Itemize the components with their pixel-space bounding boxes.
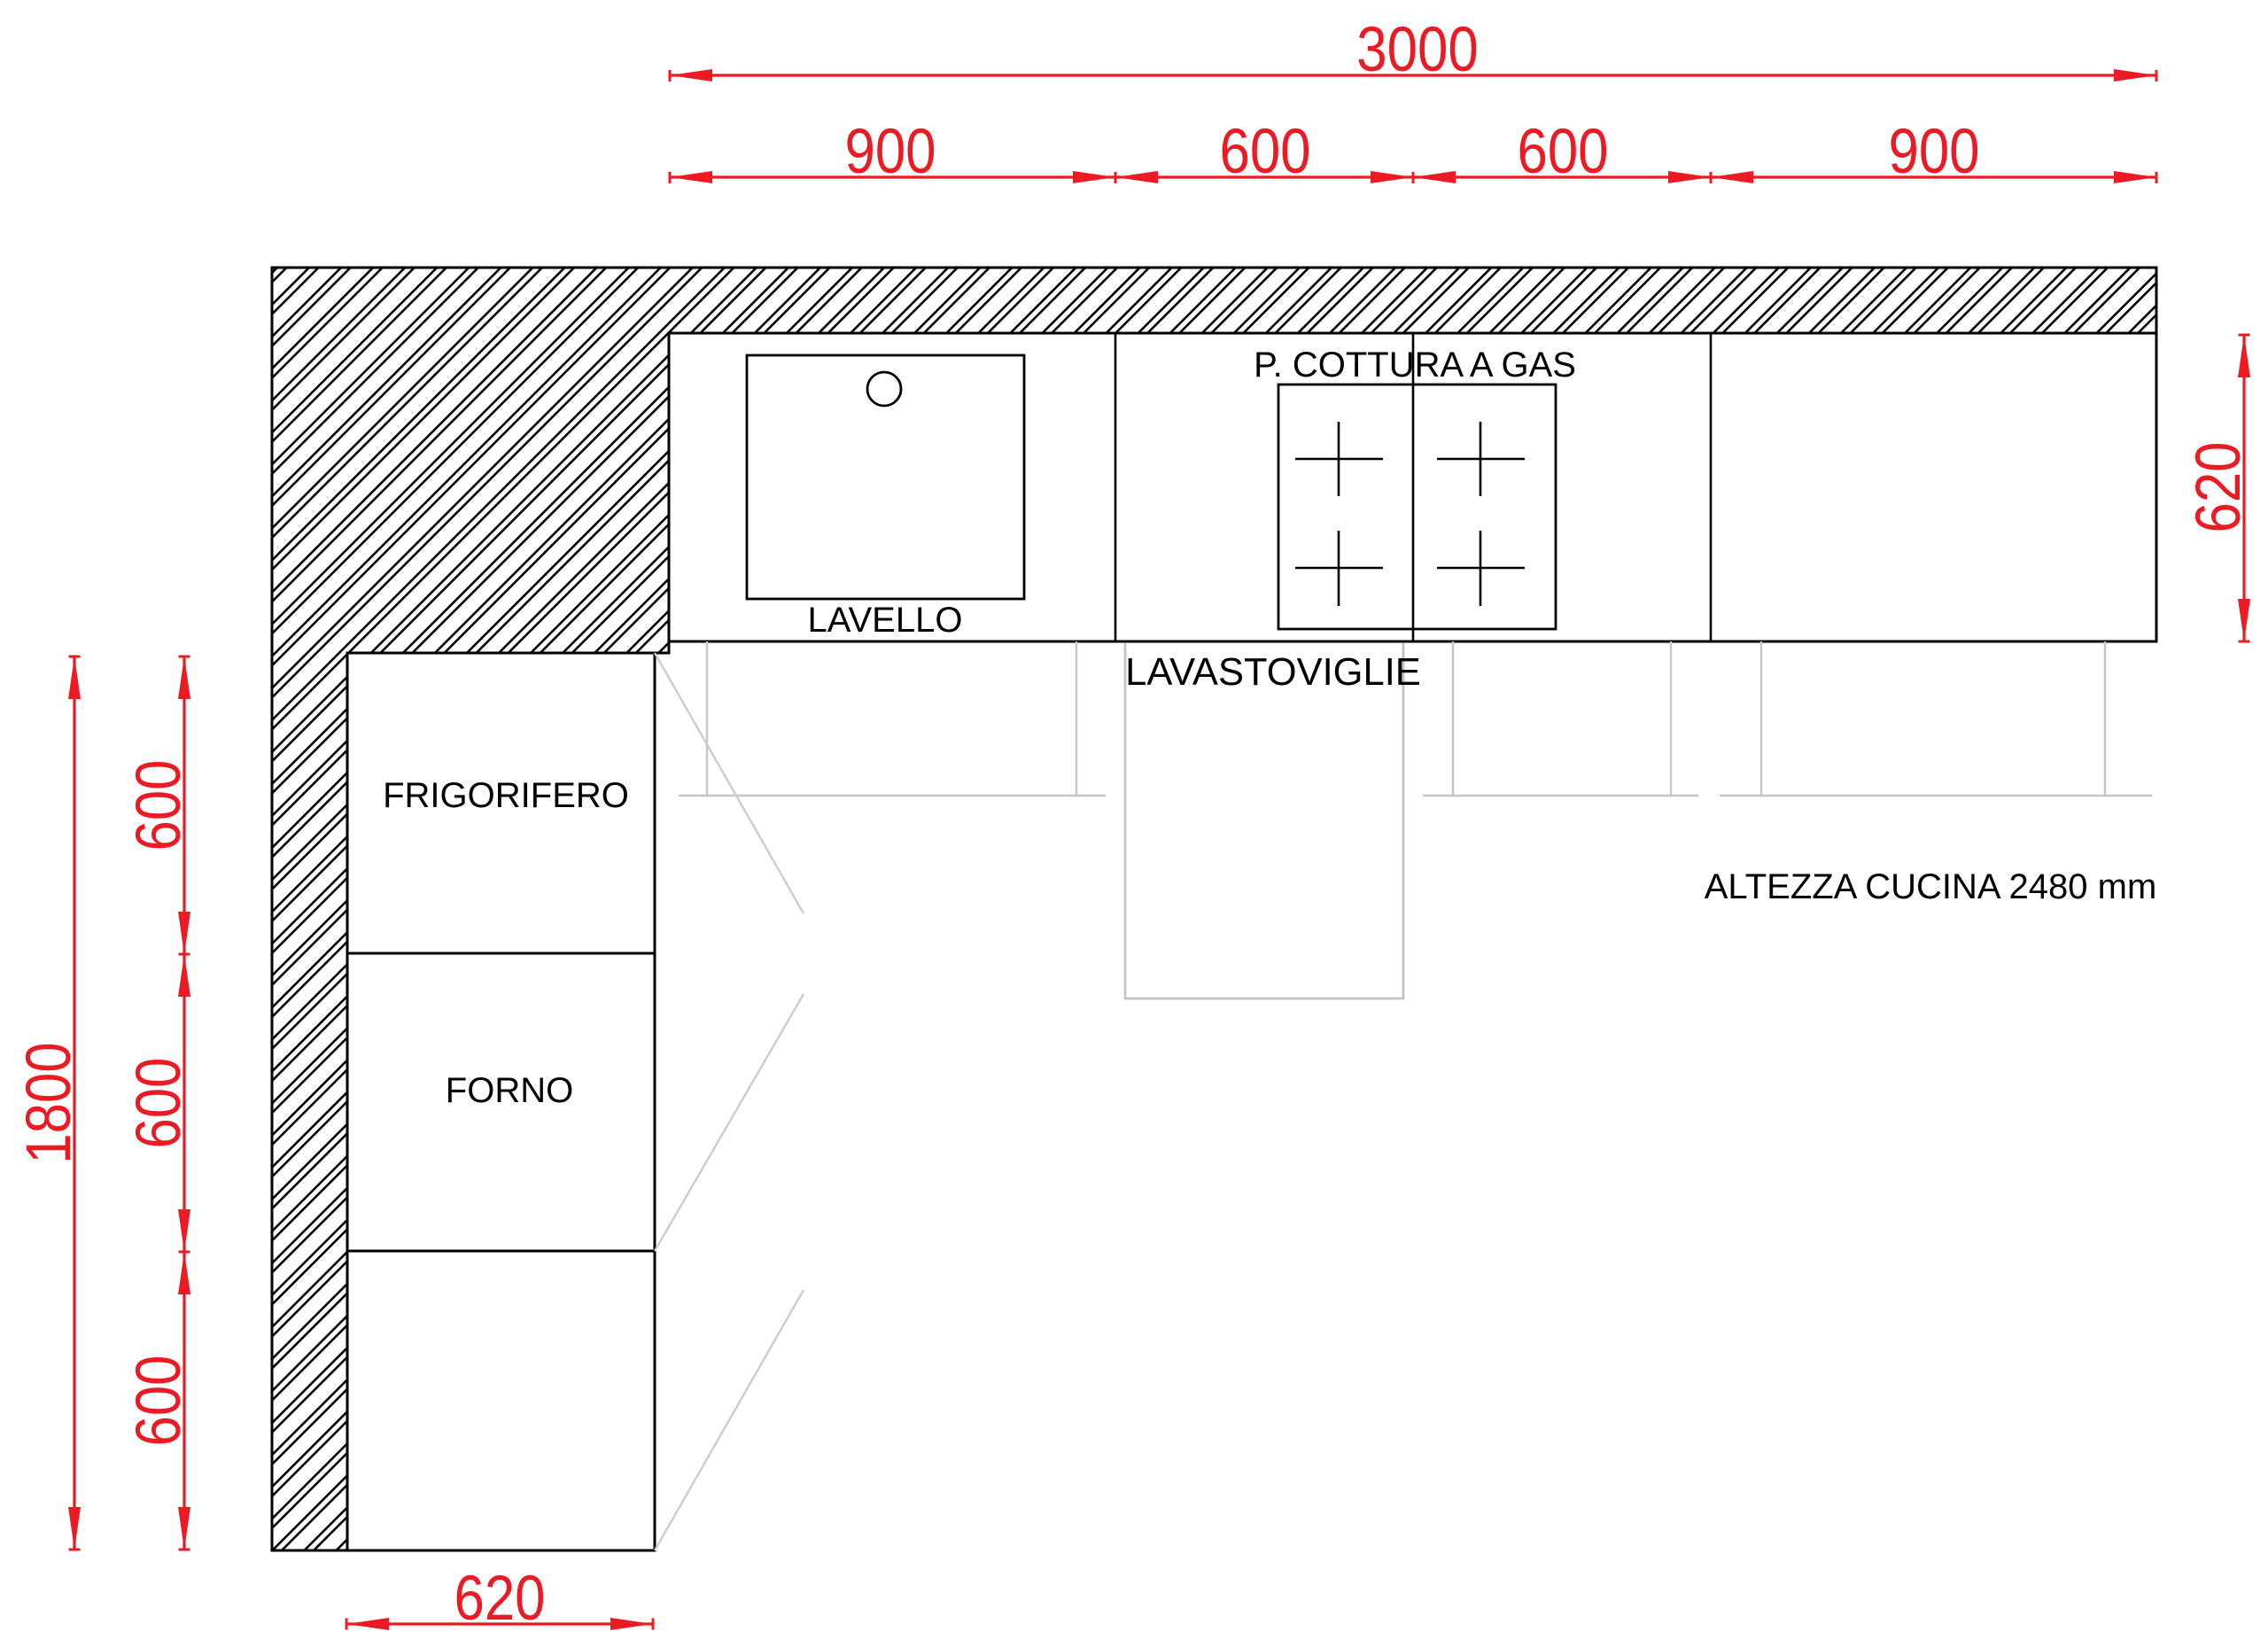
svg-text:LAVASTOVIGLIE: LAVASTOVIGLIE <box>1125 651 1421 694</box>
svg-text:1800: 1800 <box>14 1042 84 1163</box>
svg-text:3000: 3000 <box>1356 15 1478 85</box>
svg-text:600: 600 <box>124 1355 194 1446</box>
svg-text:P. COTTURA A GAS: P. COTTURA A GAS <box>1254 346 1576 385</box>
svg-text:900: 900 <box>1888 117 1979 187</box>
svg-text:600: 600 <box>1517 117 1608 187</box>
svg-text:LAVELLO: LAVELLO <box>808 601 963 640</box>
svg-text:620: 620 <box>454 1564 545 1634</box>
svg-text:600: 600 <box>1219 117 1310 187</box>
svg-text:FORNO: FORNO <box>446 1071 573 1110</box>
svg-text:620: 620 <box>2184 441 2254 532</box>
svg-text:ALTEZZA CUCINA 2480 mm: ALTEZZA CUCINA 2480 mm <box>1705 867 2157 906</box>
svg-text:900: 900 <box>844 117 936 187</box>
svg-text:600: 600 <box>124 759 194 851</box>
svg-text:FRIGORIFERO: FRIGORIFERO <box>383 776 629 815</box>
svg-text:600: 600 <box>124 1057 194 1148</box>
